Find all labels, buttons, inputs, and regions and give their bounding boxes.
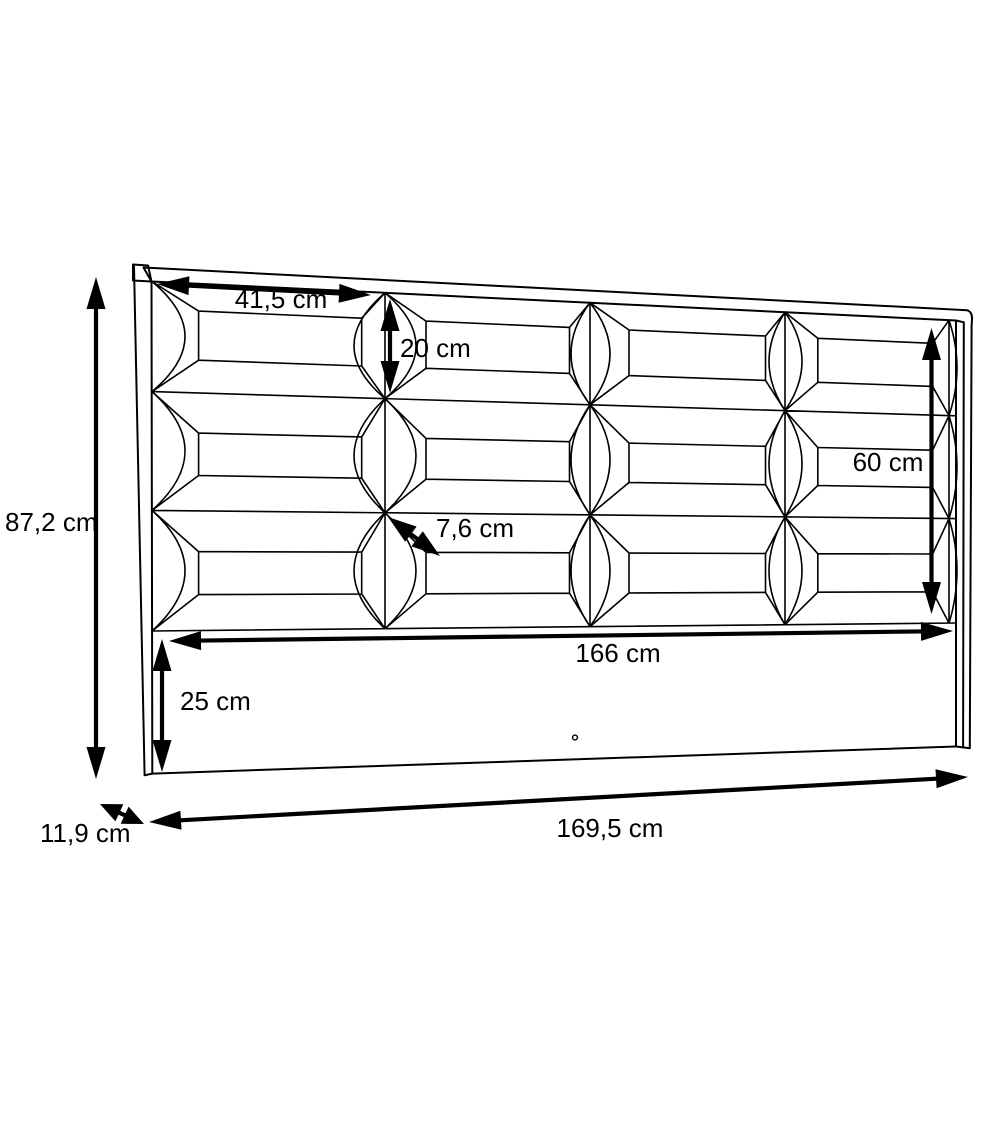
- technical-drawing-page: 87,2 cm41,5 cm20 cm60 cm7,6 cm166 cm25 c…: [0, 0, 1000, 1125]
- dimension-line: [191, 631, 930, 640]
- arrowhead-icon: [921, 622, 953, 641]
- arrowhead-icon: [87, 747, 106, 779]
- headboard-left-side-face: [134, 267, 152, 776]
- arrowhead-icon: [153, 740, 172, 772]
- dimension-base-board-height: 25 cm: [153, 639, 251, 772]
- arrowhead-icon: [169, 631, 201, 650]
- dimension-inner-width: 166 cm: [169, 622, 953, 668]
- headboard-outline: [133, 265, 972, 776]
- dimension-cushion-depth: 7,6 cm: [388, 513, 514, 556]
- arrowhead-icon: [936, 769, 969, 788]
- diagram-canvas: 87,2 cm41,5 cm20 cm60 cm7,6 cm166 cm25 c…: [0, 0, 1000, 1125]
- dimension-label-inner-width: 166 cm: [575, 638, 660, 668]
- dimension-overall-width: 169,5 cm: [149, 769, 968, 843]
- dimension-padded-area-height: 60 cm: [853, 328, 941, 614]
- arrowhead-icon: [922, 328, 941, 360]
- headboard-panel-grid: [152, 282, 957, 632]
- panel-grid-lines: [152, 282, 957, 632]
- arrowhead-icon: [153, 639, 172, 671]
- dimension-label-panel-width: 41,5 cm: [235, 284, 328, 314]
- arrowhead-icon: [922, 582, 941, 614]
- headboard-bottom-edge: [152, 747, 956, 774]
- dimension-overall-height: 87,2 cm: [5, 277, 106, 779]
- dimension-label-panel-row-height: 20 cm: [400, 333, 471, 363]
- arrowhead-icon: [339, 284, 371, 303]
- dimension-panel-width: 41,5 cm: [157, 276, 371, 314]
- arrowhead-icon: [157, 276, 189, 295]
- arrowhead-icon: [87, 277, 106, 309]
- dimension-label-side-depth: 11,9 cm: [40, 818, 131, 848]
- fixing-hole: [573, 735, 578, 740]
- arrowhead-icon: [149, 811, 182, 830]
- headboard-right-side-face: [956, 321, 972, 749]
- dimension-panel-row-height: 20 cm: [381, 299, 471, 393]
- dimension-label-overall-height: 87,2 cm: [5, 507, 98, 537]
- dimension-label-overall-width: 169,5 cm: [557, 813, 664, 843]
- dimension-label-base-board-height: 25 cm: [180, 686, 251, 716]
- dimension-label-cushion-depth: 7,6 cm: [436, 513, 514, 543]
- dimension-label-padded-area-height: 60 cm: [853, 447, 924, 477]
- dimension-side-depth: 11,9 cm: [40, 804, 144, 848]
